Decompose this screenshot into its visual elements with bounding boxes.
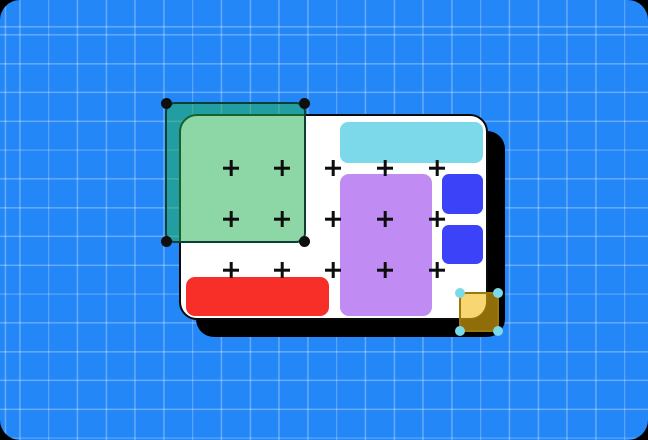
selection-handle-sw[interactable] [455, 326, 465, 336]
blue-square-shape-1[interactable] [442, 174, 483, 214]
selection-handle-ne[interactable] [493, 288, 503, 298]
selection-handle-ne[interactable] [299, 98, 310, 109]
selected-gold-square[interactable] [459, 292, 499, 332]
red-bar-shape[interactable] [186, 277, 329, 316]
selection-handle-se[interactable] [299, 236, 310, 247]
selection-handle-nw[interactable] [455, 288, 465, 298]
selected-green-rect[interactable] [165, 102, 306, 243]
blue-square-shape-2[interactable] [442, 225, 483, 264]
selection-handle-nw[interactable] [161, 98, 172, 109]
selection-handle-sw[interactable] [161, 236, 172, 247]
design-canvas[interactable] [0, 0, 648, 440]
illustration-stage [0, 0, 648, 440]
cyan-bar-shape[interactable] [340, 122, 483, 163]
purple-rect-shape[interactable] [340, 174, 432, 316]
selection-handle-se[interactable] [493, 326, 503, 336]
